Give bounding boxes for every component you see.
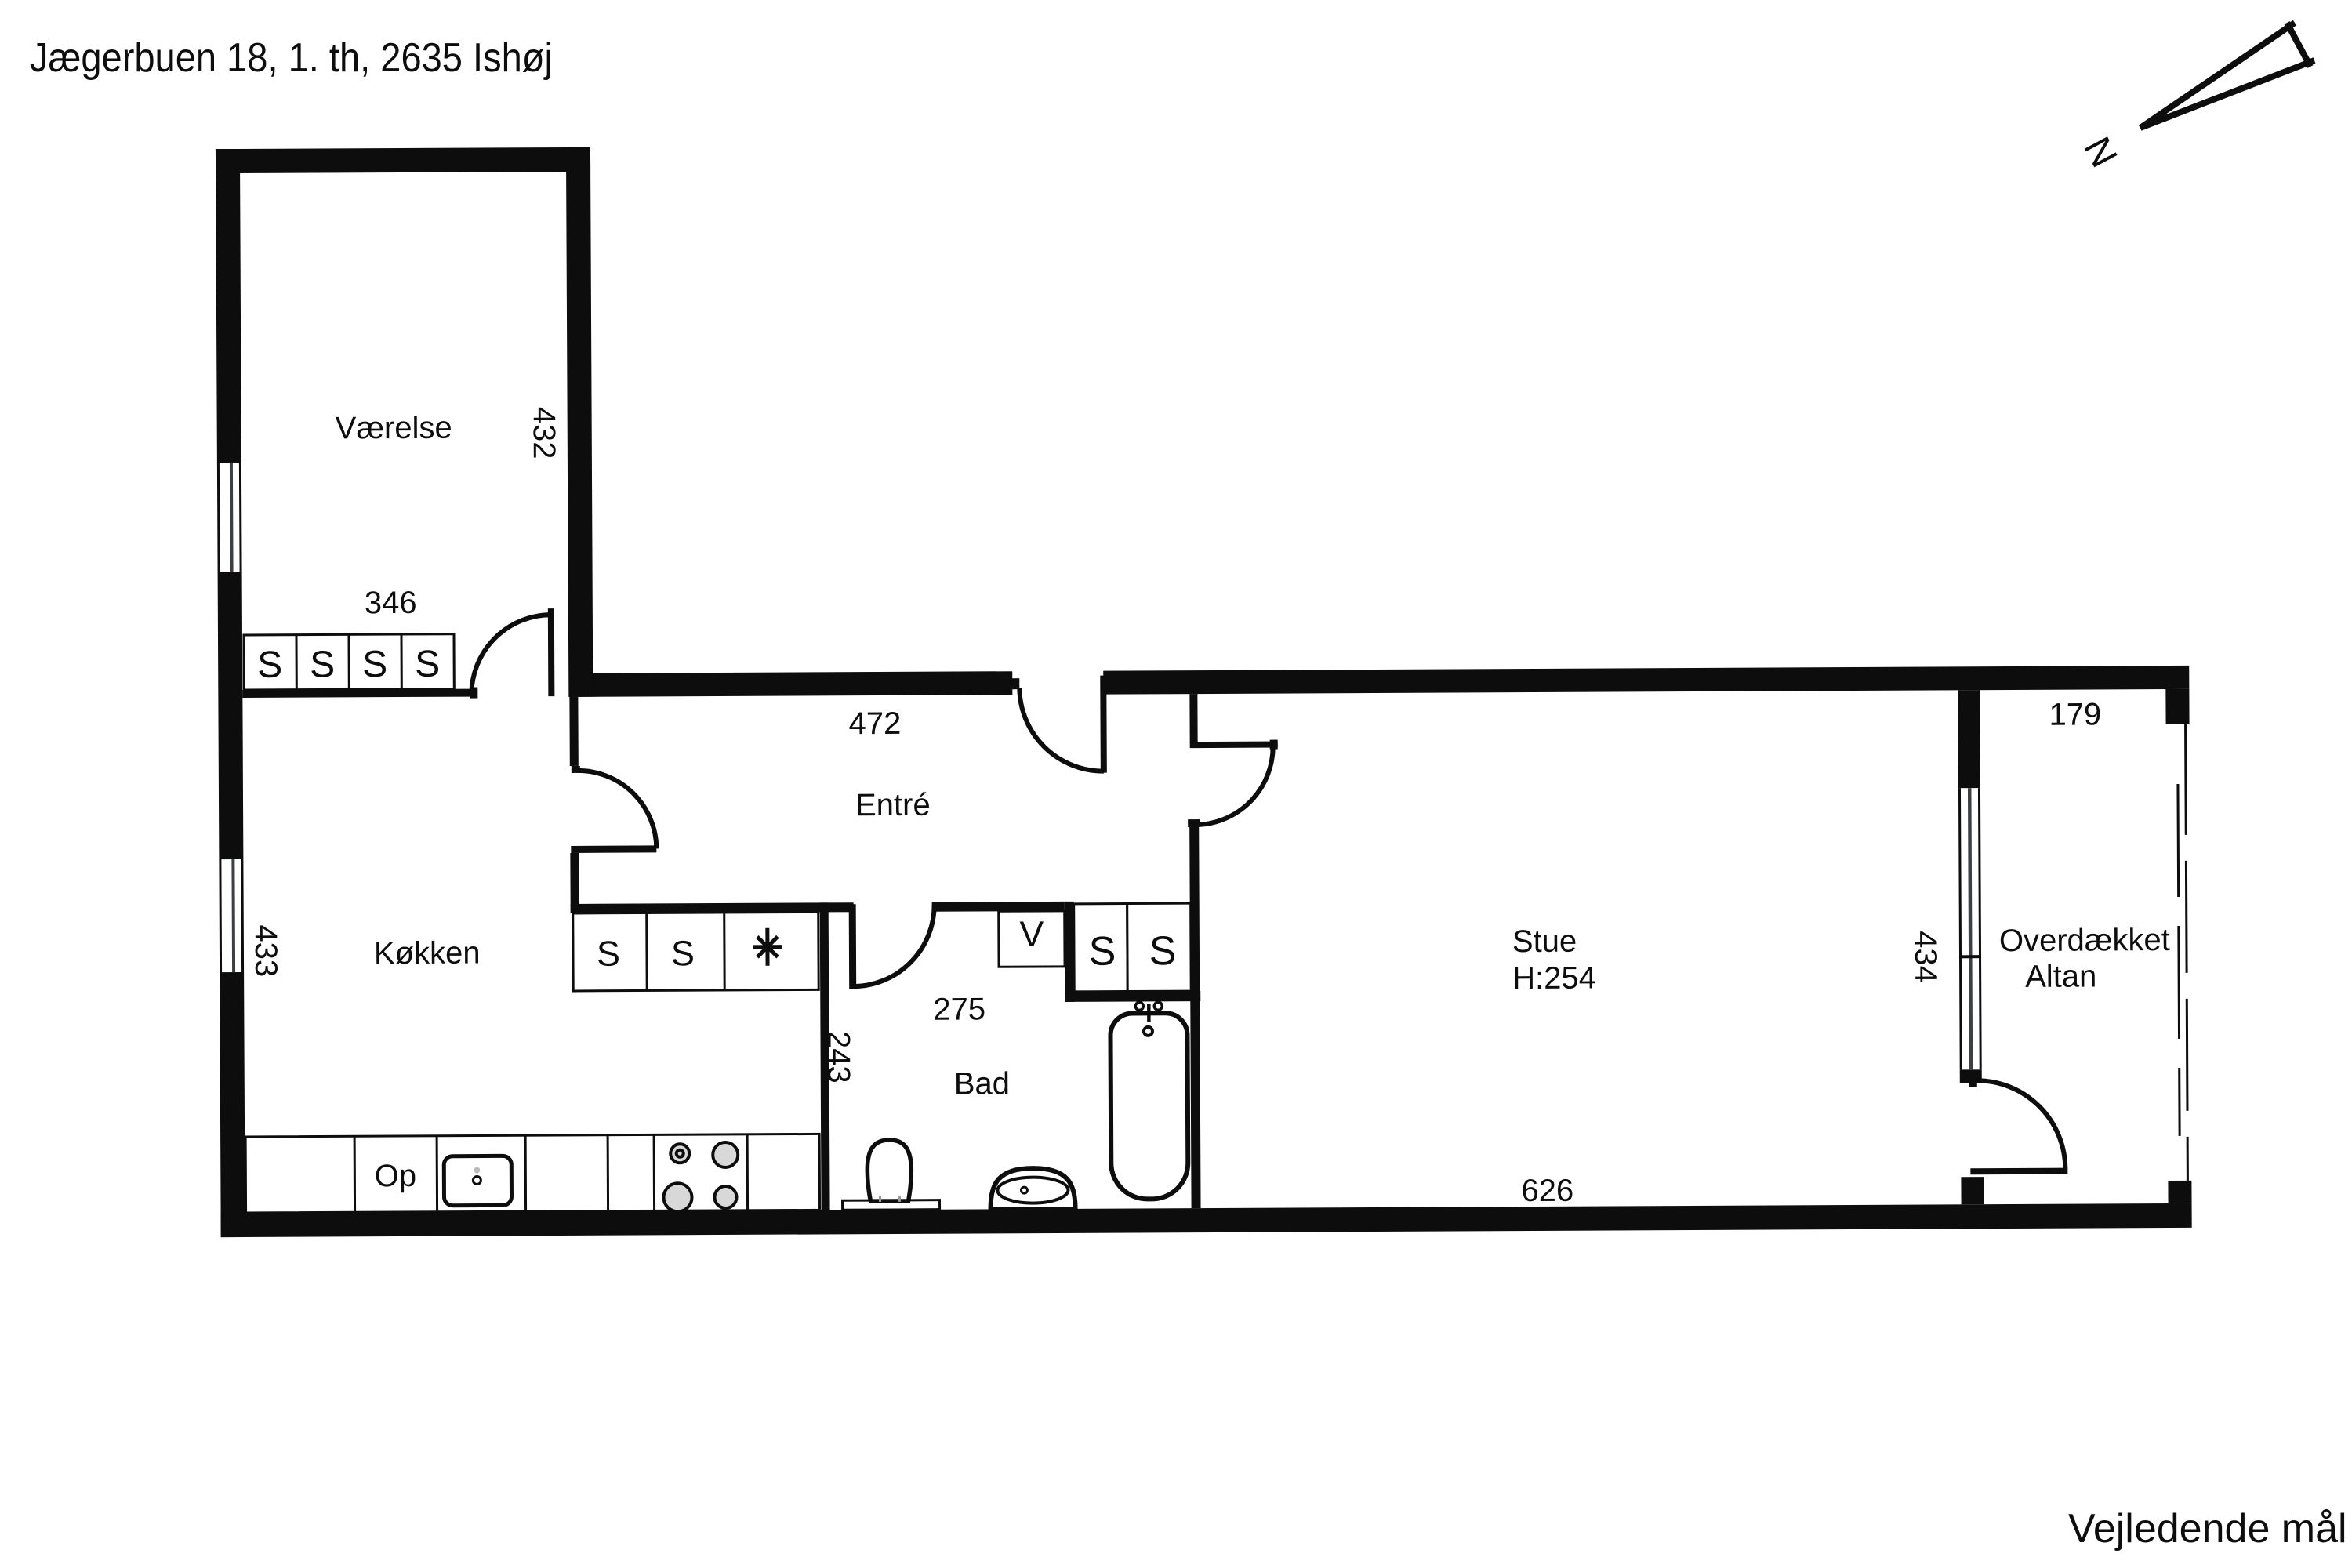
svg-text:Overdækket: Overdækket (1999, 923, 2170, 958)
svg-text:179: 179 (2049, 697, 2101, 731)
svg-text:S: S (257, 644, 282, 686)
svg-text:432: 432 (527, 407, 561, 459)
svg-text:Op: Op (375, 1159, 417, 1193)
svg-text:Køkken: Køkken (374, 936, 481, 971)
svg-text:434: 434 (1908, 931, 1943, 983)
svg-text:Entré: Entré (855, 788, 931, 822)
svg-text:S: S (671, 933, 695, 973)
svg-text:Jægerbuen 18, 1. th, 2635 Ishø: Jægerbuen 18, 1. th, 2635 Ishøj (30, 35, 553, 81)
svg-text:Altan: Altan (2025, 959, 2096, 993)
svg-text:S: S (1088, 929, 1116, 975)
svg-text:346: 346 (365, 586, 417, 620)
svg-text:S: S (310, 644, 335, 685)
svg-text:Værelse: Værelse (336, 411, 452, 446)
svg-text:275: 275 (933, 992, 985, 1026)
svg-text:472: 472 (848, 706, 901, 741)
svg-text:Vejledende mål: Vejledende mål (2068, 1506, 2347, 1552)
svg-text:S: S (415, 644, 440, 685)
svg-text:626: 626 (1521, 1174, 1573, 1208)
svg-text:S: S (1149, 928, 1176, 974)
svg-text:Bad: Bad (954, 1066, 1010, 1101)
svg-text:V: V (1019, 913, 1044, 954)
svg-text:S: S (597, 934, 620, 974)
svg-text:N: N (2077, 130, 2126, 174)
svg-text:S: S (362, 644, 387, 685)
svg-text:243: 243 (821, 1031, 855, 1083)
svg-text:433: 433 (249, 924, 283, 977)
svg-text:H:254: H:254 (1512, 961, 1596, 996)
svg-text:Stue: Stue (1512, 924, 1577, 959)
